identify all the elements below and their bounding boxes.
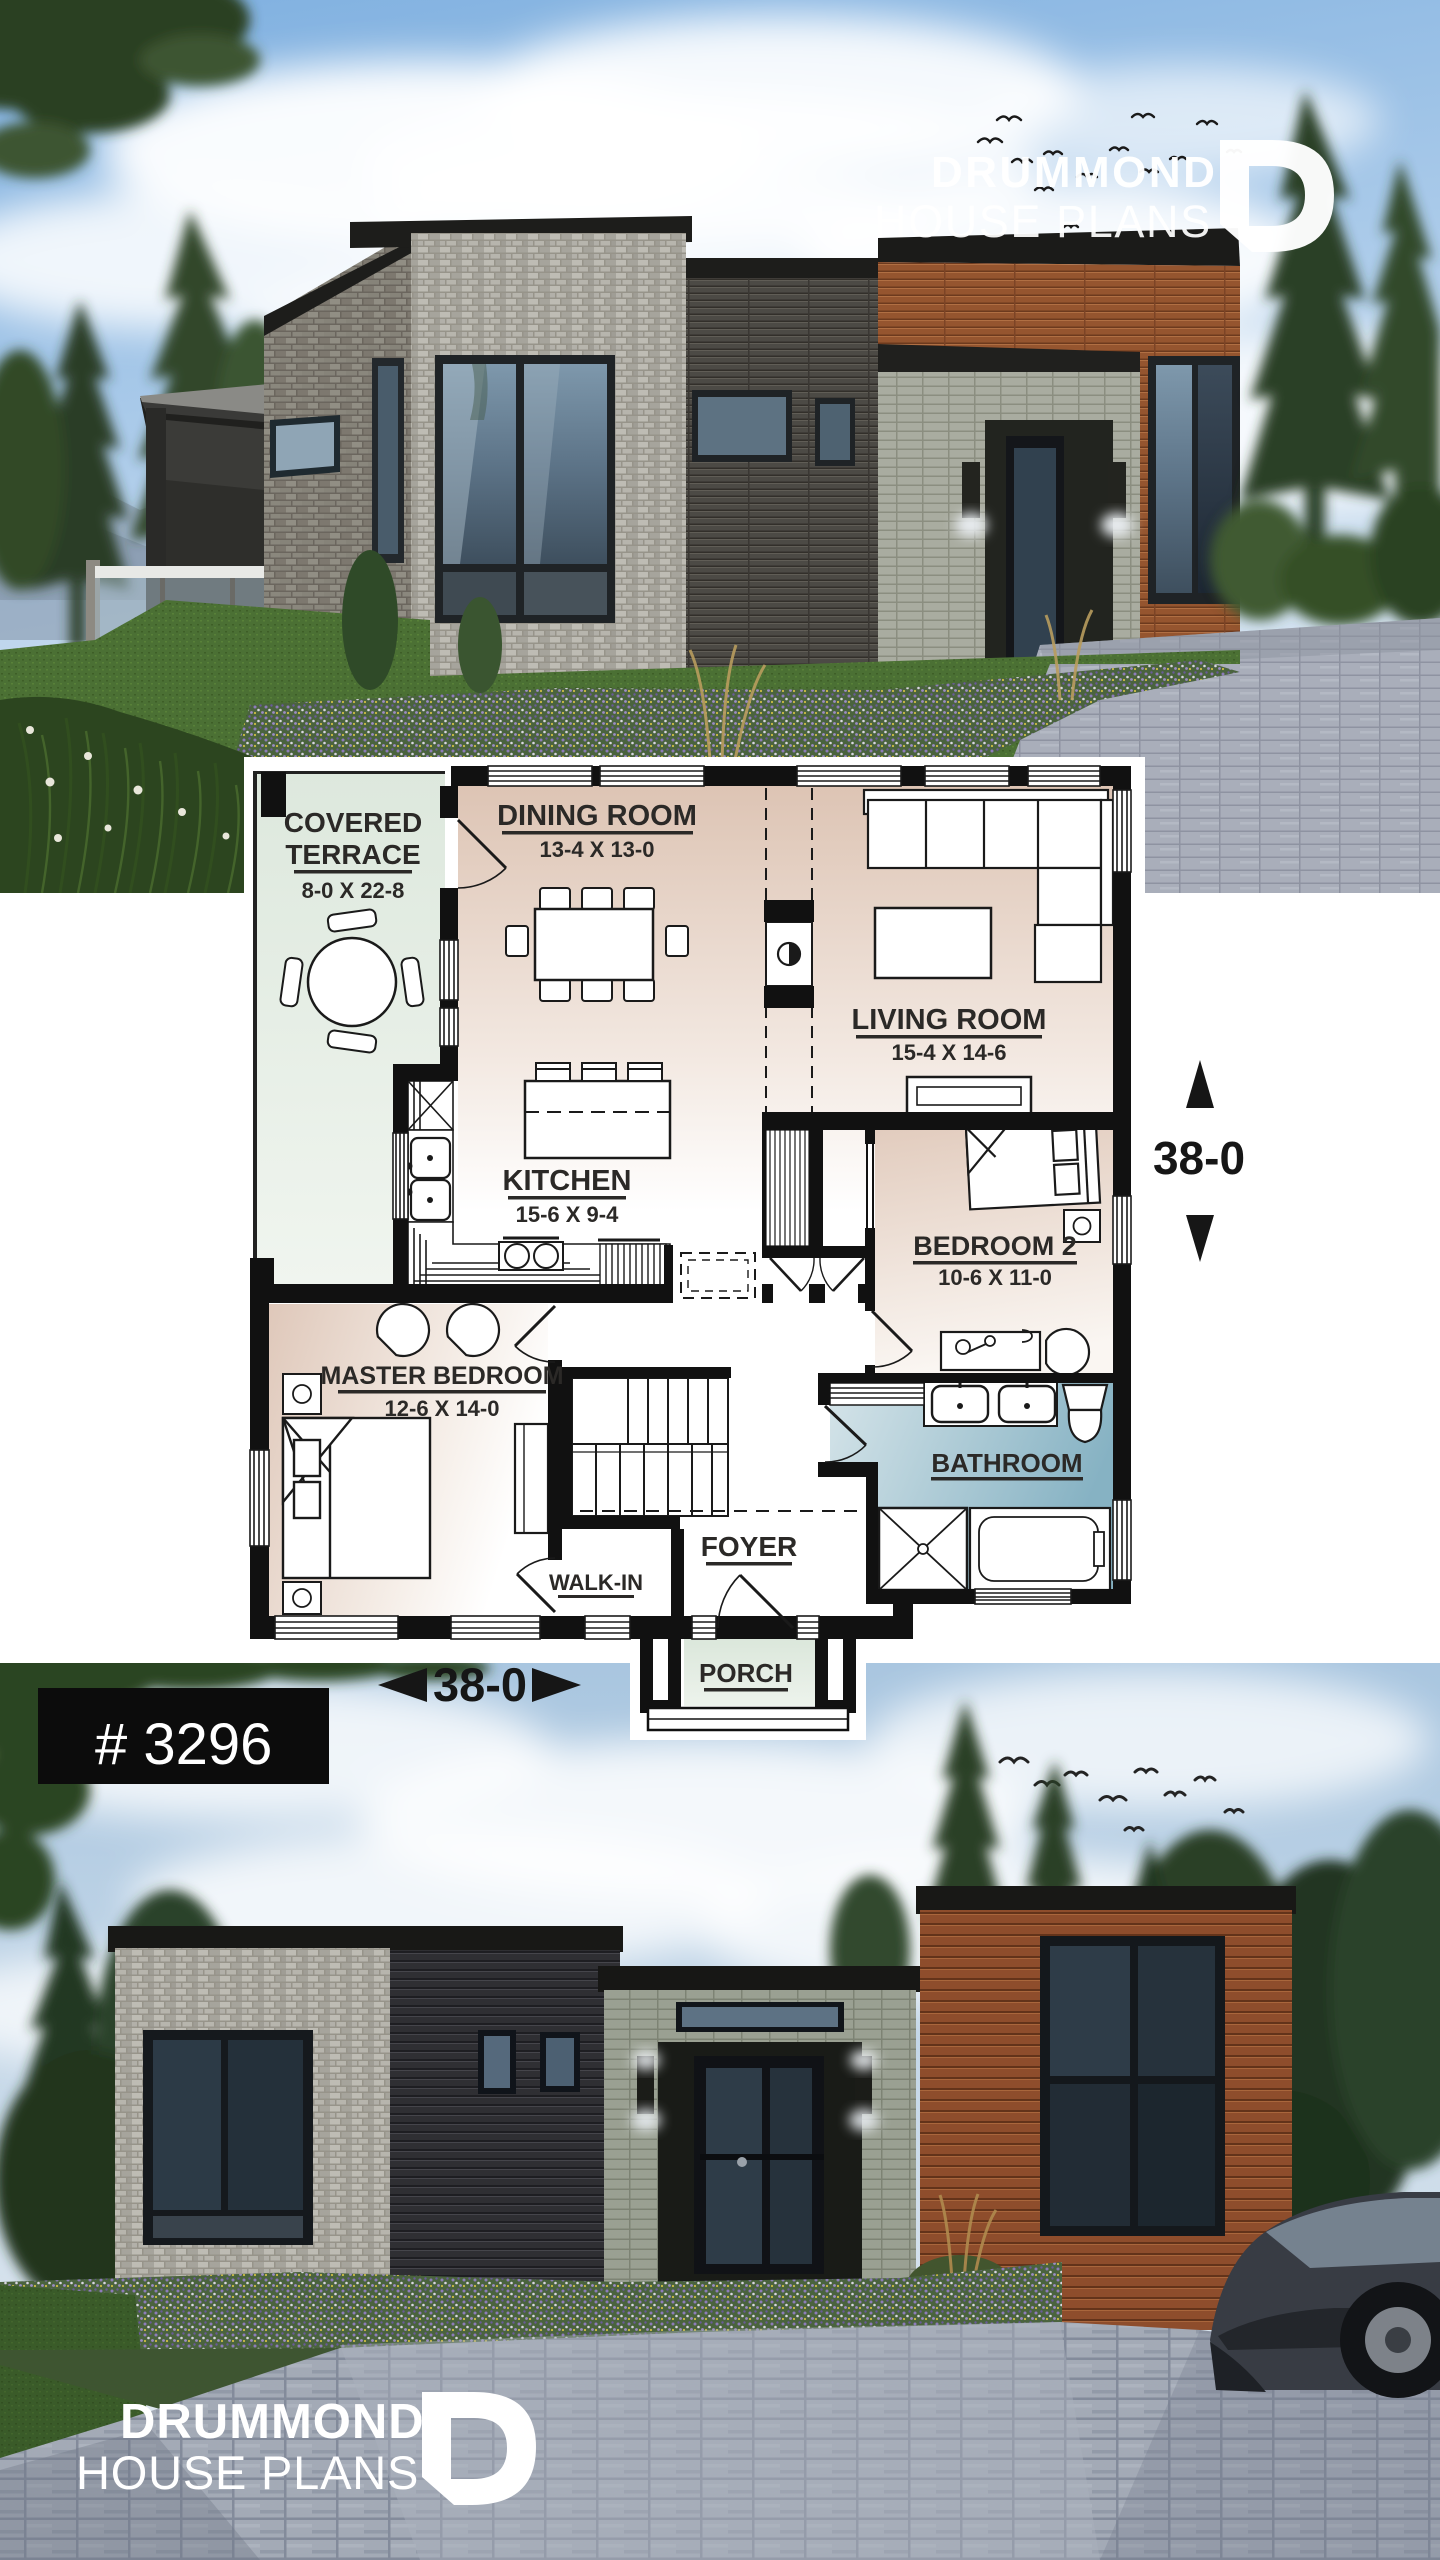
svg-text:DRUMMOND: DRUMMOND xyxy=(931,148,1217,197)
svg-text:COVERED: COVERED xyxy=(284,807,422,838)
svg-text:TERRACE: TERRACE xyxy=(285,839,420,870)
svg-text:# 3296: # 3296 xyxy=(95,1712,272,1777)
svg-text:MASTER BEDROOM: MASTER BEDROOM xyxy=(320,1362,563,1390)
svg-text:BEDROOM 2: BEDROOM 2 xyxy=(913,1231,1077,1261)
svg-text:8-0 X 22-8: 8-0 X 22-8 xyxy=(302,878,405,903)
svg-text:FOYER: FOYER xyxy=(701,1531,797,1562)
svg-text:LIVING ROOM: LIVING ROOM xyxy=(852,1004,1047,1036)
svg-text:13-4 X 13-0: 13-4 X 13-0 xyxy=(540,837,655,862)
svg-text:38-0: 38-0 xyxy=(1153,1132,1245,1184)
svg-text:HOUSE PLANS: HOUSE PLANS xyxy=(874,196,1212,247)
svg-text:DRUMMOND: DRUMMOND xyxy=(120,2395,425,2449)
svg-text:12-6 X 14-0: 12-6 X 14-0 xyxy=(385,1396,500,1421)
svg-text:WALK-IN: WALK-IN xyxy=(549,1570,643,1595)
svg-text:38-0: 38-0 xyxy=(433,1658,527,1711)
svg-text:DINING ROOM: DINING ROOM xyxy=(497,800,697,832)
svg-text:PORCH: PORCH xyxy=(699,1658,793,1688)
svg-text:KITCHEN: KITCHEN xyxy=(503,1165,632,1197)
svg-text:10-6 X 11-0: 10-6 X 11-0 xyxy=(938,1265,1052,1290)
svg-text:BATHROOM: BATHROOM xyxy=(931,1448,1082,1478)
svg-text:15-4 X 14-6: 15-4 X 14-6 xyxy=(892,1040,1007,1065)
svg-text:15-6 X 9-4: 15-6 X 9-4 xyxy=(516,1202,619,1227)
svg-text:HOUSE PLANS: HOUSE PLANS xyxy=(76,2446,419,2499)
